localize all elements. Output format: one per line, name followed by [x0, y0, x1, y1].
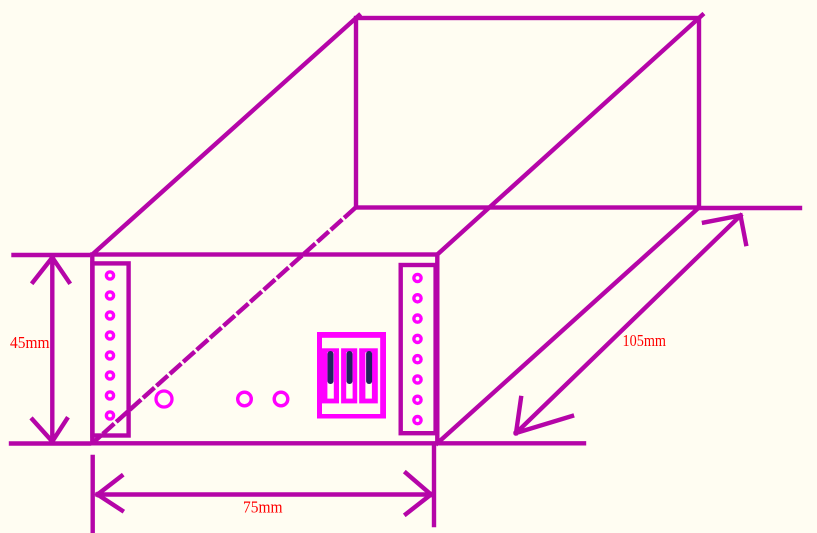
svg-text:75mm: 75mm — [243, 498, 283, 517]
svg-text:105mm: 105mm — [623, 331, 667, 350]
svg-text:45mm: 45mm — [10, 333, 50, 352]
